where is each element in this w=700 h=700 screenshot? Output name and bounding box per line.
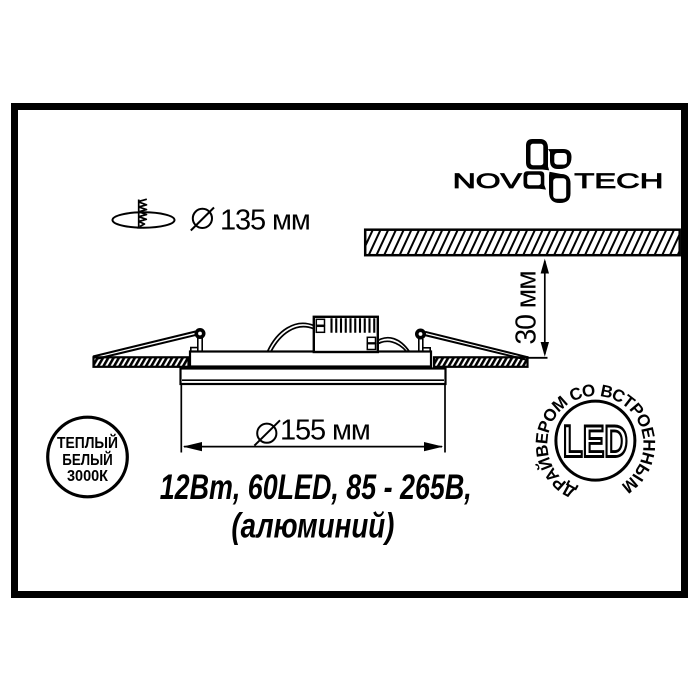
svg-text:TECH: TECH [574, 169, 663, 193]
svg-text:155 мм: 155 мм [280, 415, 370, 447]
svg-text:30 мм: 30 мм [511, 271, 543, 344]
svg-text:3000К: 3000К [67, 468, 108, 485]
svg-text:БЕЛЫЙ: БЕЛЫЙ [62, 450, 113, 469]
svg-text:12Вm, 60LED, 85 - 265В,: 12Вm, 60LED, 85 - 265В, [160, 468, 472, 507]
svg-text:ТЕПЛЫЙ: ТЕПЛЫЙ [57, 433, 118, 452]
svg-text:135 мм: 135 мм [220, 204, 310, 236]
svg-text:(алюминий): (алюминий) [231, 507, 394, 546]
svg-text:LED: LED [563, 418, 628, 467]
svg-text:NOV: NOV [453, 169, 523, 193]
